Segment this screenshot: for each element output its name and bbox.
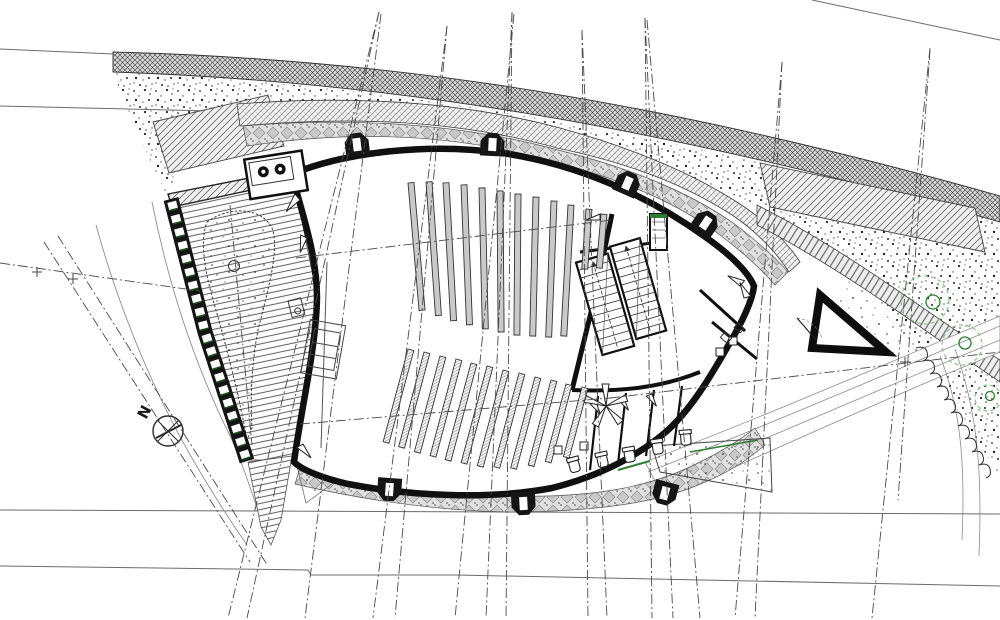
floor-plan-canvas: N [0,0,1000,620]
north-label: N [134,402,156,422]
kitchen [244,151,308,200]
north-symbol: N [134,402,183,446]
floor-plan-page: N [0,0,1000,620]
